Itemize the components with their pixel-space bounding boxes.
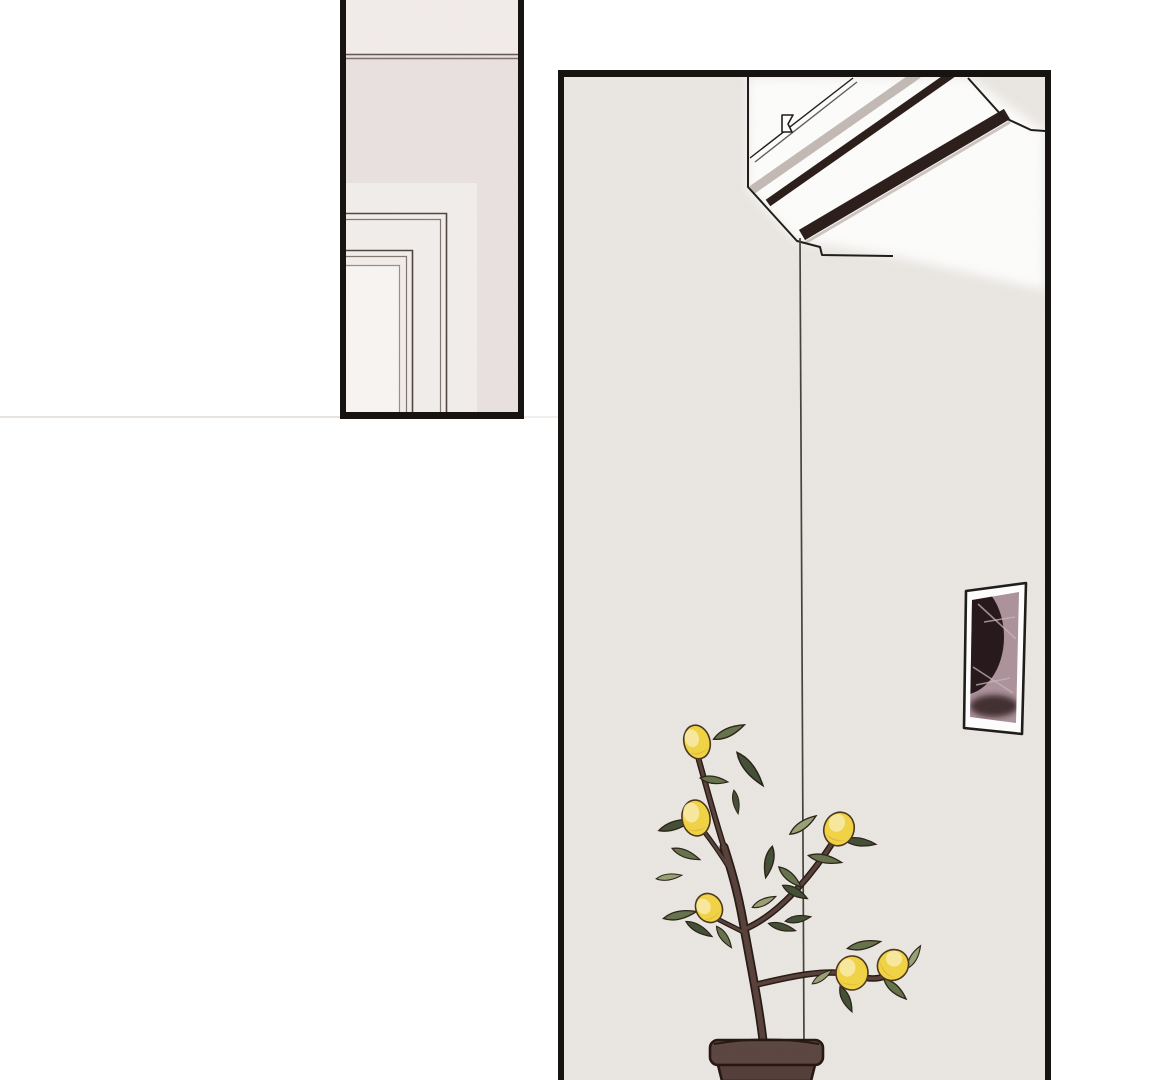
comic-page: { "page": { "type": "comic-page", "descr… — [0, 0, 1170, 1080]
panel-doorframe — [340, 0, 524, 419]
panel-room — [558, 70, 1051, 1080]
page-divider-line — [0, 416, 340, 418]
room-illustration — [564, 77, 1045, 1080]
paper-grain — [346, 0, 518, 412]
paper-grain — [564, 77, 1045, 1080]
page-divider-line-right-segment — [524, 416, 558, 418]
doorframe-illustration — [346, 0, 518, 412]
